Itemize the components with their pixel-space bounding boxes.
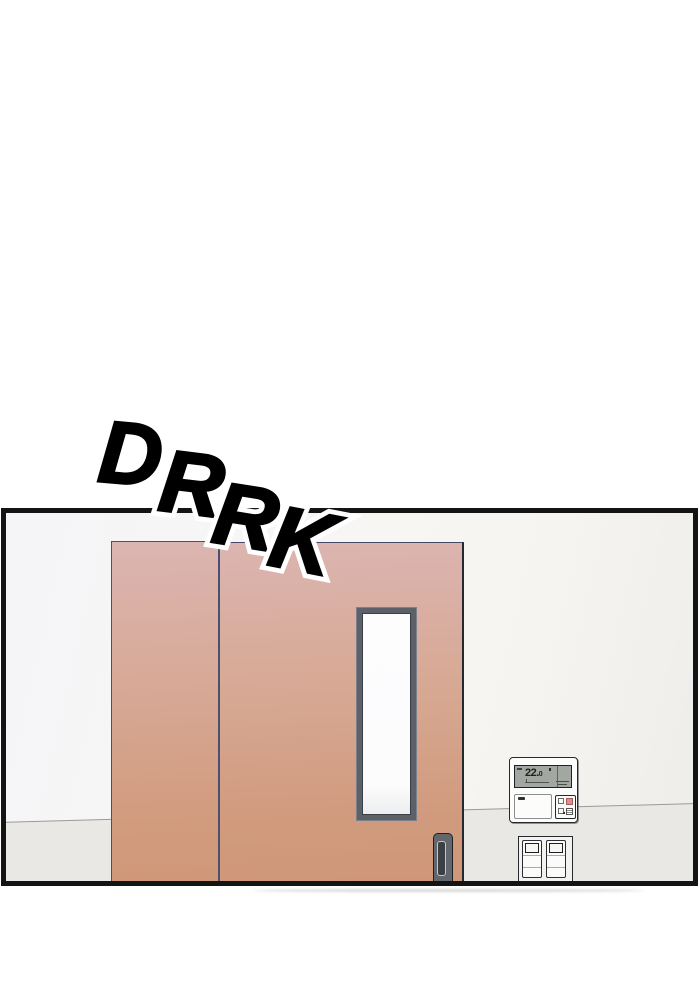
ac-display-microtext-line bbox=[558, 784, 567, 785]
comic-panel: 22.0 bbox=[1, 508, 698, 886]
ac-button-cluster bbox=[555, 795, 576, 819]
door-window-frame bbox=[356, 607, 417, 821]
rocker-divider-line bbox=[547, 867, 565, 868]
rocker-divider-line bbox=[523, 867, 541, 868]
ac-display-microtext-line bbox=[556, 781, 569, 782]
ac-display-tick bbox=[526, 779, 527, 783]
ac-button-dot bbox=[563, 812, 565, 814]
rocker-divider-line bbox=[523, 855, 541, 856]
ac-display-underline bbox=[525, 782, 549, 783]
ac-power-button bbox=[566, 798, 573, 805]
sliding-door-left-leaf bbox=[111, 541, 218, 881]
ac-flap-notch bbox=[518, 797, 525, 800]
ac-wall-controller: 22.0 bbox=[509, 757, 578, 823]
ac-cover-flap bbox=[514, 794, 552, 819]
door-handle-slot bbox=[437, 841, 446, 876]
ac-temperature-value: 22.0 bbox=[525, 768, 542, 780]
ac-button bbox=[558, 798, 564, 804]
sliding-door bbox=[218, 542, 464, 881]
sfx-letter-fill: D bbox=[95, 401, 167, 505]
ac-display-status-mark bbox=[517, 768, 522, 770]
door-window-glass bbox=[362, 613, 411, 815]
door-handle bbox=[433, 833, 453, 881]
ac-lcd-display: 22.0 bbox=[514, 765, 572, 788]
ac-temperature-main: 22. bbox=[525, 767, 539, 779]
rocker-divider-line bbox=[547, 855, 565, 856]
light-switch-rocker-left bbox=[522, 840, 542, 878]
rocker-top-frame bbox=[525, 843, 539, 853]
sfx-letter: D D bbox=[95, 407, 166, 500]
ac-temperature-decimal: 0 bbox=[539, 771, 542, 778]
rocker-top-frame bbox=[549, 843, 563, 853]
ac-degree-mark bbox=[549, 768, 551, 771]
panel-drop-shadow bbox=[253, 889, 645, 892]
light-switch-rocker-right bbox=[546, 840, 566, 878]
light-switch-plate bbox=[518, 836, 573, 881]
ac-button bbox=[566, 808, 573, 815]
